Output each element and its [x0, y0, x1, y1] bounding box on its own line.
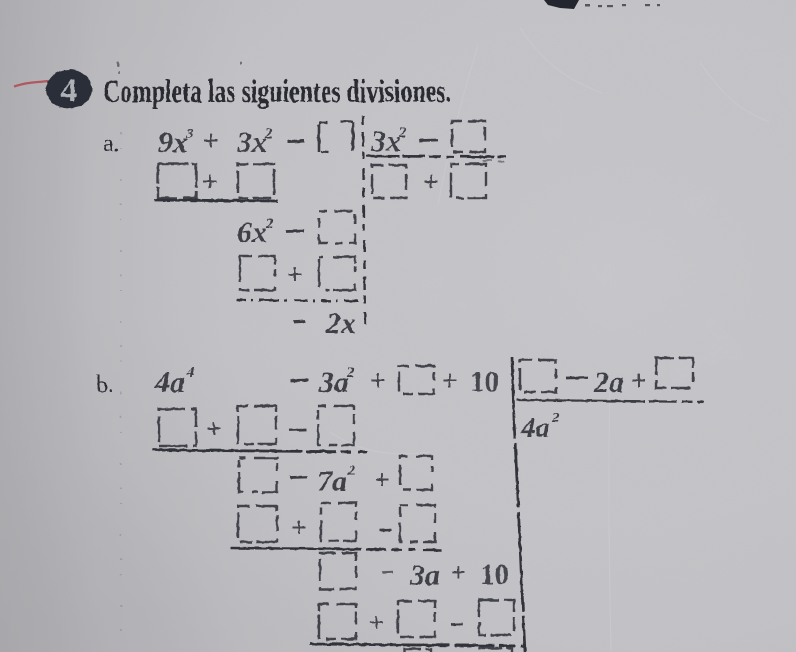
svg-text:+: + [631, 366, 647, 397]
svg-text:4a: 4a [520, 412, 550, 444]
svg-text:2: 2 [264, 126, 273, 142]
svg-text:+: + [203, 126, 219, 157]
svg-text:+: + [374, 465, 390, 496]
svg-text:+: + [369, 608, 384, 637]
svg-text:3x: 3x [236, 126, 267, 159]
svg-text:+: + [451, 558, 466, 587]
svg-text:+: + [370, 366, 386, 397]
svg-text:6x: 6x [237, 216, 267, 249]
svg-text:10: 10 [470, 366, 499, 398]
svg-text:+: + [206, 414, 222, 445]
svg-text:+: + [442, 366, 458, 397]
svg-text:2: 2 [398, 125, 407, 141]
svg-text:+: + [423, 167, 439, 198]
svg-text:7a: 7a [317, 465, 347, 498]
svg-text:2: 2 [346, 365, 355, 381]
svg-text:+: + [291, 513, 307, 544]
svg-text:Completa las siguientes divisi: Completa las siguientes divisiones. [103, 73, 451, 110]
svg-text:4: 4 [186, 365, 195, 381]
svg-text:+: + [287, 260, 303, 291]
svg-text:10: 10 [480, 559, 509, 591]
svg-text:4a: 4a [154, 366, 185, 399]
svg-text:2: 2 [551, 410, 560, 426]
svg-text:+: + [202, 167, 218, 198]
svg-text:3a: 3a [409, 559, 440, 592]
svg-text:9x: 9x [158, 126, 188, 159]
svg-text:2x: 2x [325, 307, 356, 340]
svg-text:b.: b. [96, 372, 114, 398]
svg-text:3a: 3a [318, 366, 349, 399]
svg-text:3x: 3x [370, 125, 401, 158]
svg-text:2: 2 [347, 463, 356, 479]
svg-text:a.: a. [103, 131, 120, 157]
svg-text:2a: 2a [593, 366, 624, 399]
svg-text:4: 4 [61, 73, 78, 109]
svg-text:3: 3 [185, 126, 194, 142]
svg-text:2: 2 [265, 216, 274, 232]
